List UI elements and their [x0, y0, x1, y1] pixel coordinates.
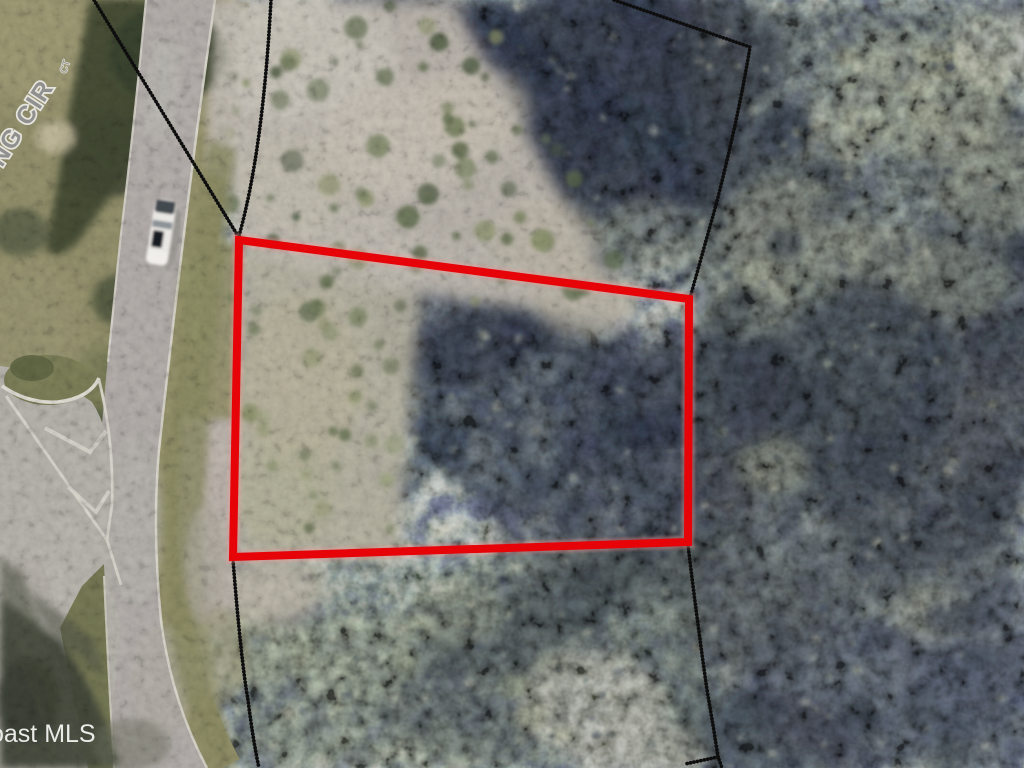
svg-text:oast MLS: oast MLS [0, 720, 96, 748]
